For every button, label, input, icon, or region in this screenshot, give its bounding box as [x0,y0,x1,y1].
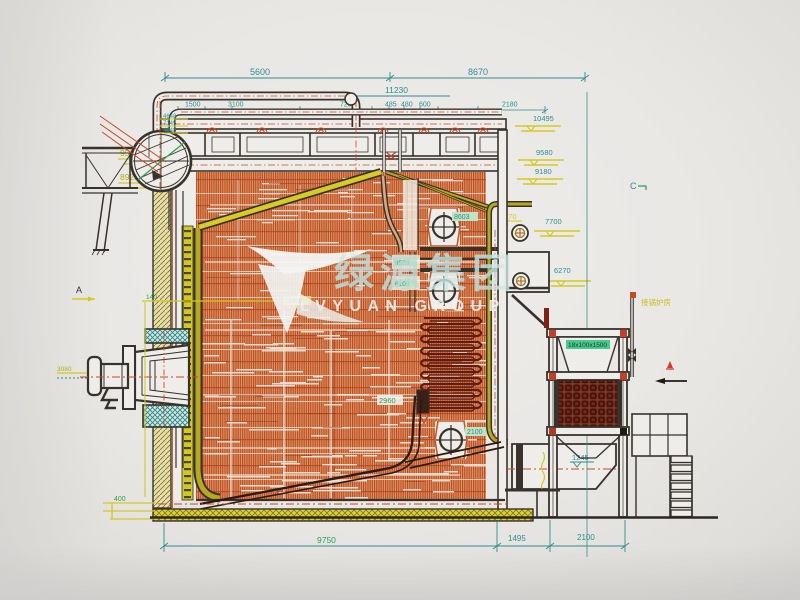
svg-text:3100: 3100 [228,102,244,109]
svg-text:1495: 1495 [508,534,526,543]
svg-text:18x100x1500: 18x100x1500 [568,342,607,349]
svg-text:8670: 8670 [468,67,488,77]
svg-text:480: 480 [401,102,413,109]
svg-text:3080: 3080 [57,366,72,373]
svg-text:绿源集团: 绿源集团 [334,252,518,296]
svg-text:9750: 9750 [317,535,336,545]
svg-text:2100: 2100 [577,533,595,542]
svg-text:A: A [76,285,82,295]
svg-text:2180: 2180 [502,102,518,109]
svg-text:9580: 9580 [536,148,553,157]
svg-text:LVYUAN GROUP: LVYUAN GROUP [300,298,506,315]
svg-text:7700: 7700 [545,217,562,226]
svg-text:8603: 8603 [454,214,470,221]
svg-text:1500: 1500 [185,102,201,109]
svg-text:5600: 5600 [250,67,270,77]
svg-text:C: C [630,181,637,191]
svg-text:9180: 9180 [535,167,552,176]
svg-text:2960: 2960 [379,396,396,405]
svg-text:400: 400 [114,496,126,503]
svg-text:接锅炉房: 接锅炉房 [641,297,671,307]
svg-text:6270: 6270 [554,266,571,275]
svg-text:485: 485 [385,102,397,109]
svg-text:2100: 2100 [467,429,483,436]
svg-text:140: 140 [146,294,157,301]
svg-text:10495: 10495 [533,114,554,123]
svg-text:600: 600 [419,102,431,109]
svg-text:11230: 11230 [385,85,408,95]
